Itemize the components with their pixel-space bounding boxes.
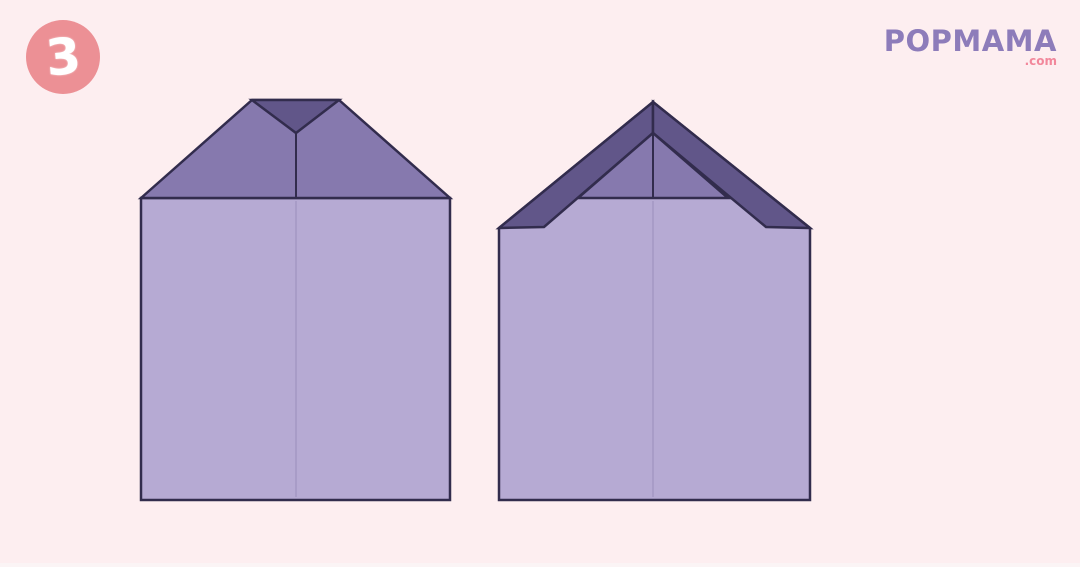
page: 3 POPMAMA .com: [0, 0, 1080, 567]
origami-diagram: [0, 0, 1080, 567]
footer-strip: [0, 563, 1080, 567]
origami-step-left-figure: [141, 100, 450, 500]
brand-logo: POPMAMA .com: [884, 27, 1057, 67]
step-badge: 3: [26, 20, 100, 94]
brand-name: POPMAMA: [884, 27, 1057, 56]
step-number: 3: [43, 31, 82, 84]
